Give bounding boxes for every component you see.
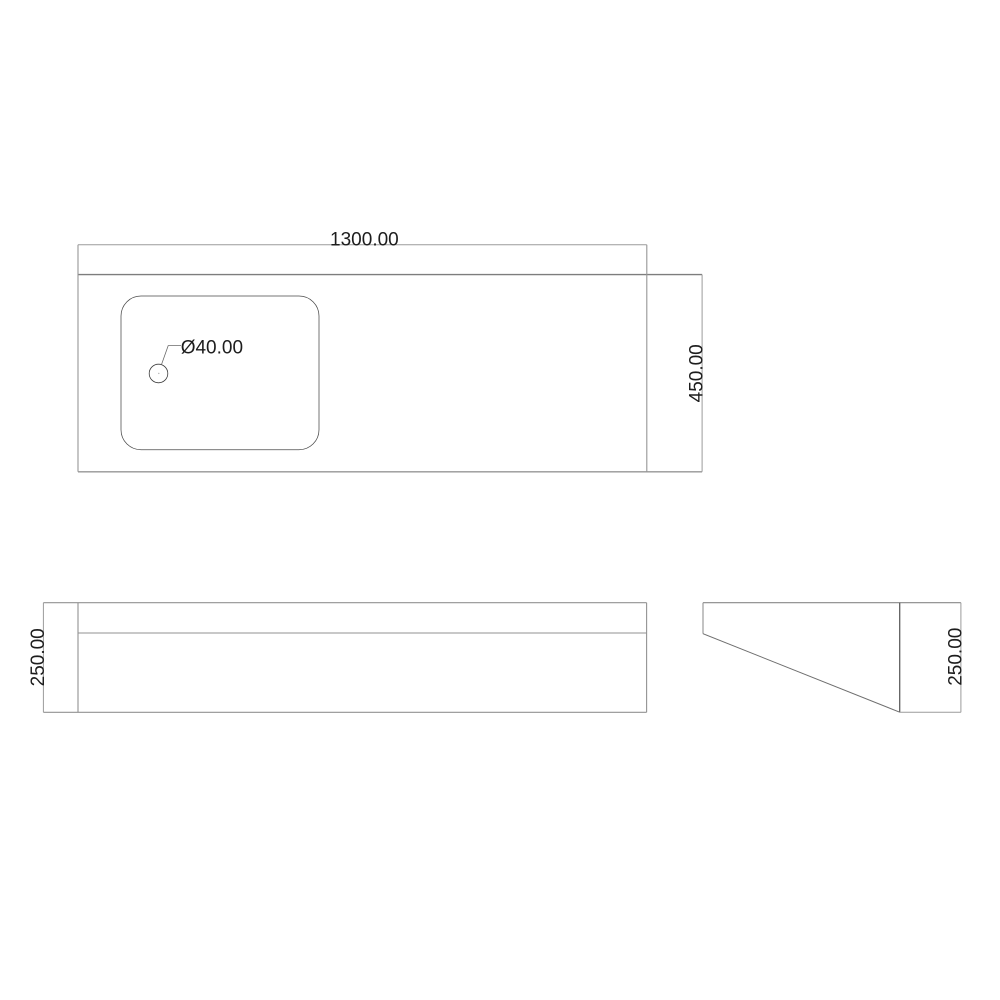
svg-text:450.00: 450.00 — [686, 344, 707, 402]
svg-text:250.00: 250.00 — [28, 628, 49, 686]
svg-text:1300.00: 1300.00 — [330, 229, 399, 250]
svg-text:Ø40.00: Ø40.00 — [181, 337, 243, 358]
svg-text:250.00: 250.00 — [945, 628, 966, 686]
